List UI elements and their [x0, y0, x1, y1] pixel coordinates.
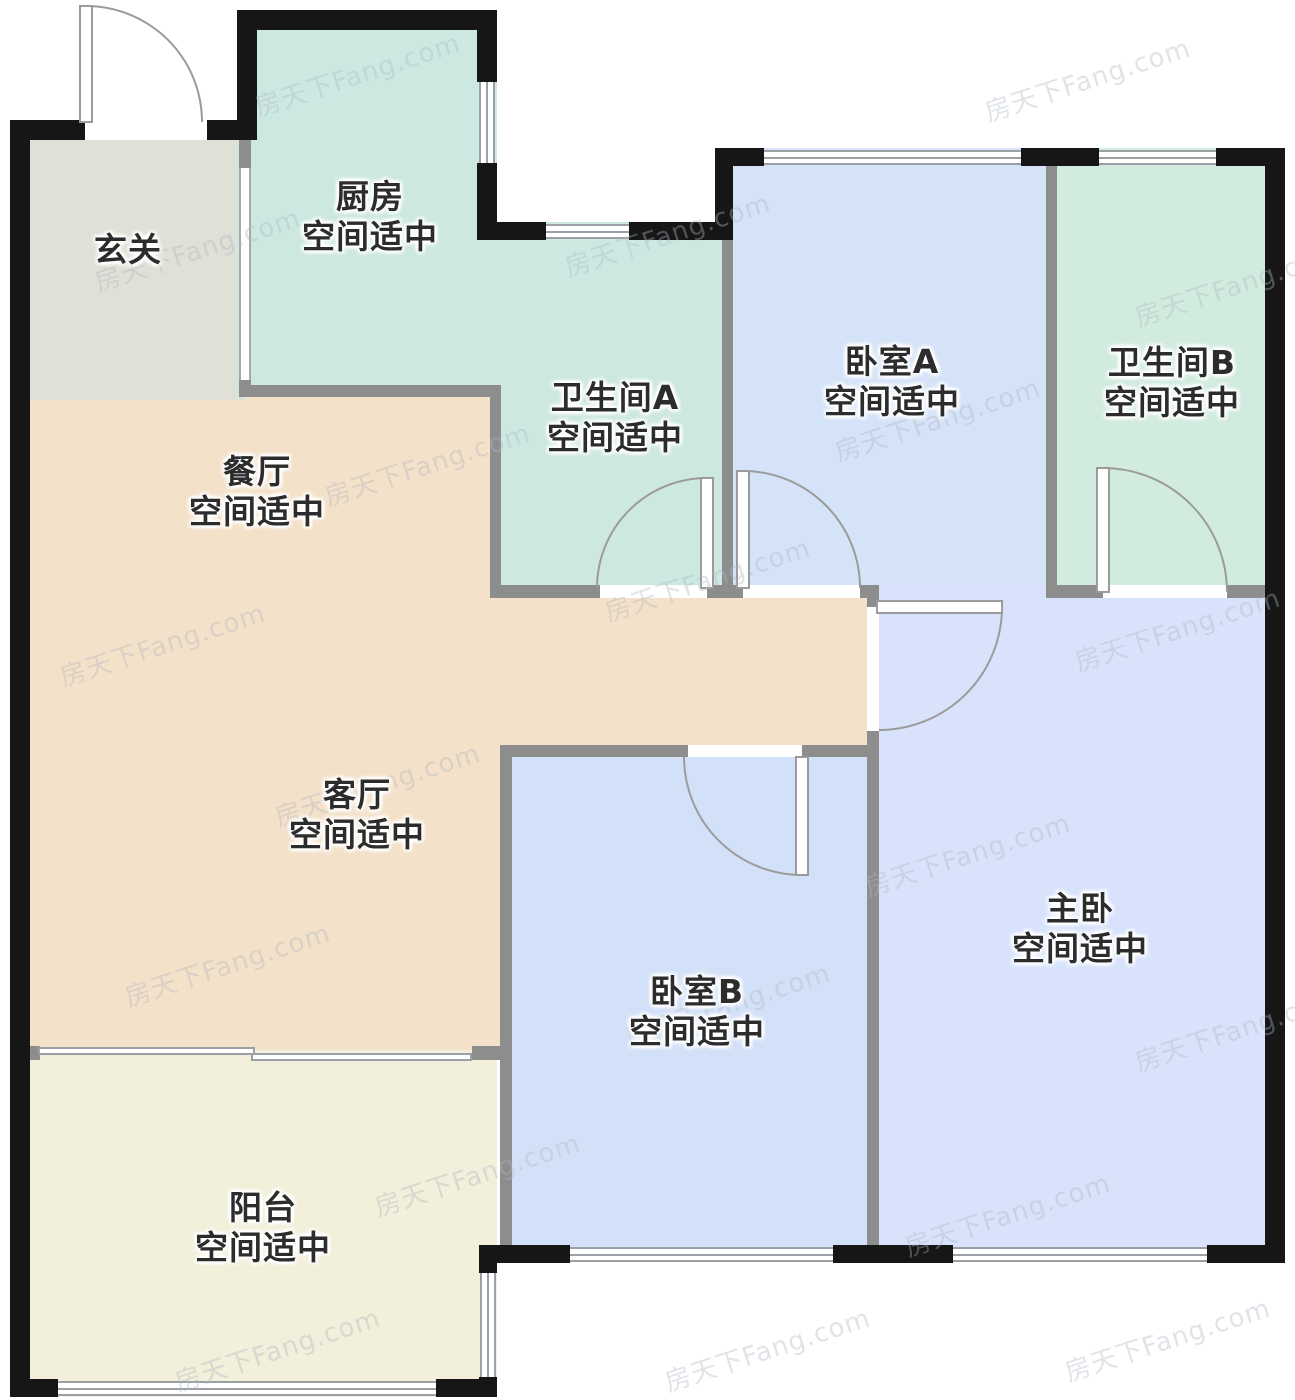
entry-door-arc [86, 6, 202, 122]
bedroom-a-door-arc [743, 471, 860, 588]
room-name: 厨房 [302, 177, 438, 217]
room-subtitle: 空间适中 [289, 815, 425, 855]
bathroom-b-door-arc [1103, 468, 1227, 592]
room-name: 卫生间B [1104, 343, 1240, 383]
room-subtitle: 空间适中 [629, 1012, 765, 1052]
room-name: 卧室B [629, 972, 765, 1012]
bedroom-a-door-leaf [737, 471, 749, 588]
room-name: 卧室A [824, 342, 960, 382]
room-subtitle: 空间适中 [189, 492, 325, 532]
bathroom-b-door-leaf [1097, 468, 1109, 592]
room-subtitle: 空间适中 [1104, 383, 1240, 423]
room-label-balcony: 阳台 空间适中 [195, 1188, 331, 1269]
room-subtitle: 空间适中 [1012, 929, 1148, 969]
entry-door-leaf [80, 6, 92, 122]
room-label-foyer: 玄关 [94, 230, 162, 270]
room-name: 客厅 [289, 775, 425, 815]
room-subtitle: 空间适中 [824, 382, 960, 422]
bathroom-a-door-leaf [701, 478, 713, 588]
room-label-master: 主卧 空间适中 [1012, 889, 1148, 970]
room-name: 卫生间A [547, 378, 683, 418]
room-name: 餐厅 [189, 452, 325, 492]
room-subtitle: 空间适中 [195, 1228, 331, 1268]
room-name: 玄关 [94, 230, 162, 270]
master-door-leaf [877, 601, 1002, 613]
room-label-bathroom-b: 卫生间B 空间适中 [1104, 343, 1240, 424]
room-label-bedroom-b: 卧室B 空间适中 [629, 972, 765, 1053]
room-subtitle: 空间适中 [302, 217, 438, 257]
room-label-dining: 餐厅 空间适中 [189, 452, 325, 533]
floor-plan: 房天下Fang.com房天下Fang.com房天下Fang.com房天下Fang… [0, 0, 1295, 1400]
room-name: 阳台 [195, 1188, 331, 1228]
bedroom-b-door-leaf [796, 757, 808, 875]
room-label-living: 客厅 空间适中 [289, 775, 425, 856]
bathroom-a-door-arc [597, 478, 707, 588]
room-label-bathroom-a: 卫生间A 空间适中 [547, 378, 683, 459]
bedroom-b-door-arc [684, 757, 802, 875]
room-label-bedroom-a: 卧室A 空间适中 [824, 342, 960, 423]
room-label-kitchen: 厨房 空间适中 [302, 177, 438, 258]
room-subtitle: 空间适中 [547, 418, 683, 458]
master-door-arc [879, 607, 1002, 730]
room-name: 主卧 [1012, 889, 1148, 929]
